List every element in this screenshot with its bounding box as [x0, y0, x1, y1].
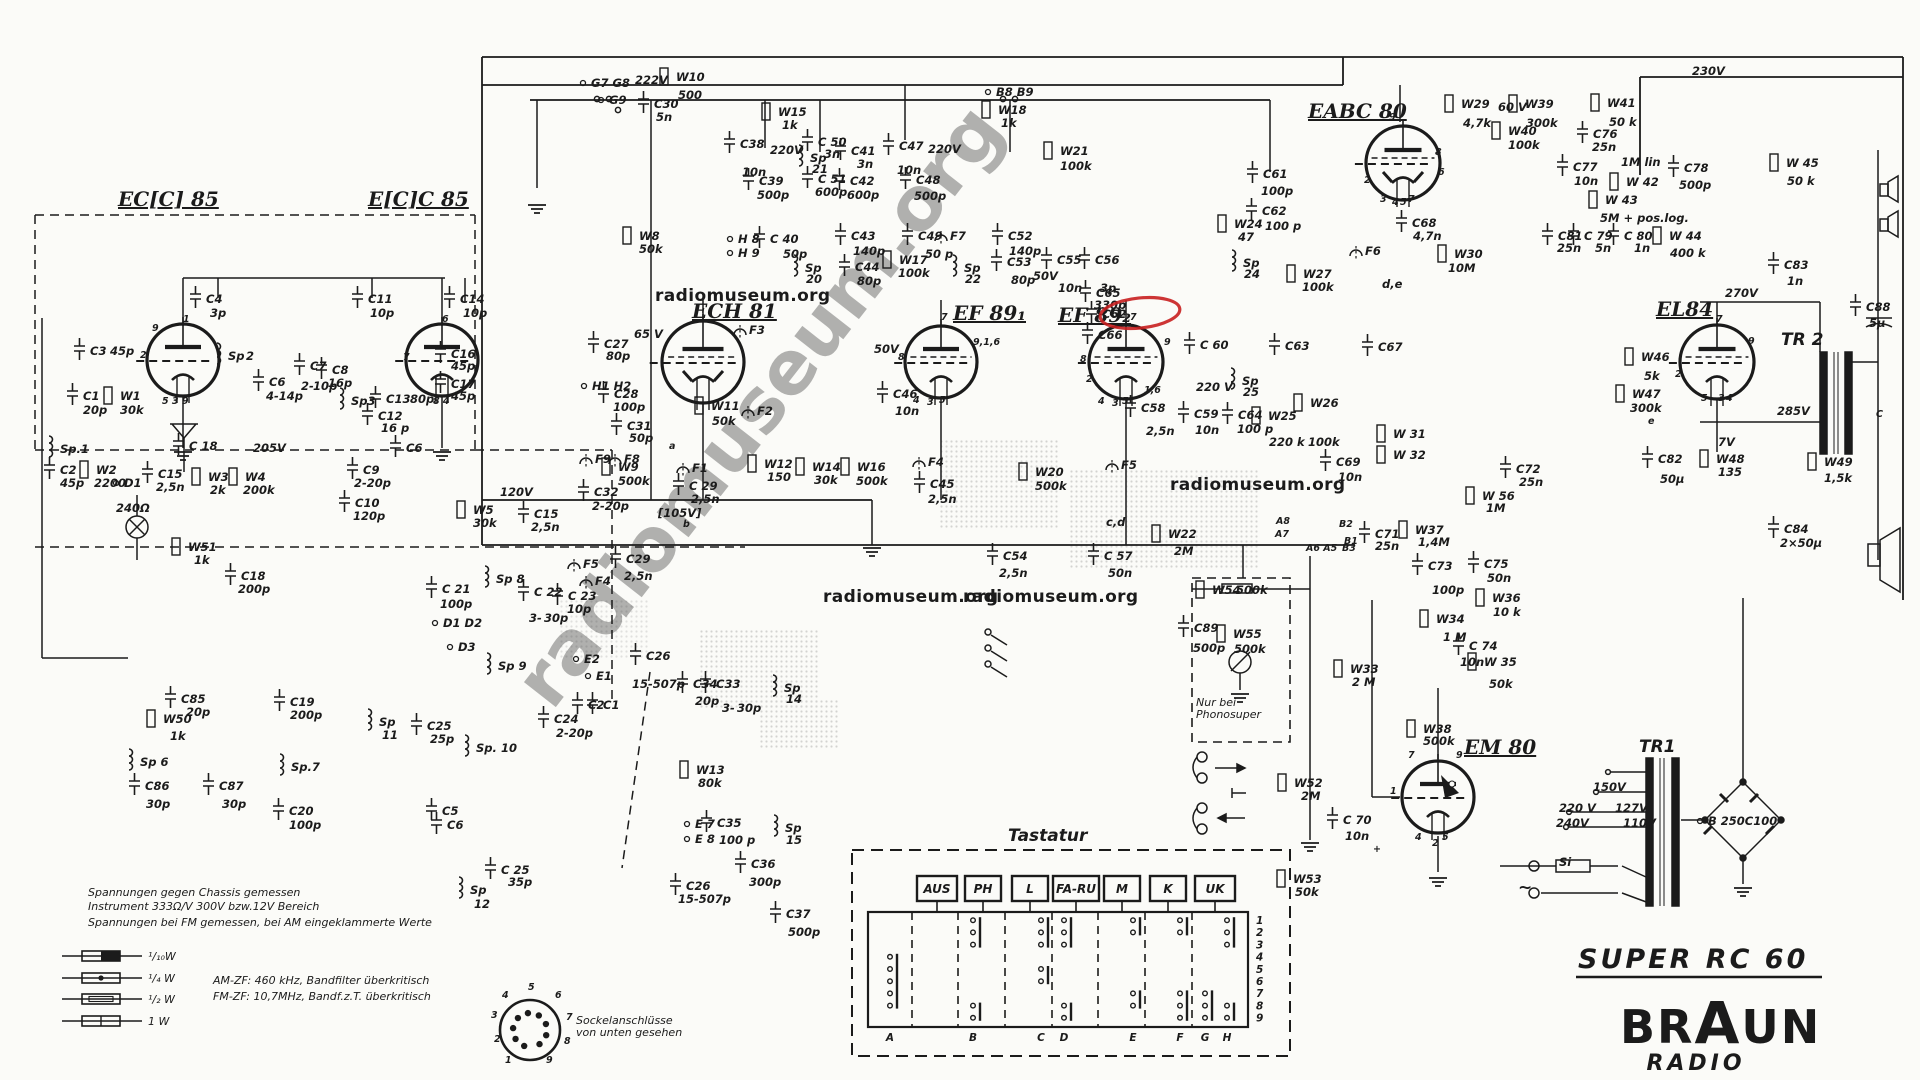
component-label: 500p — [788, 925, 820, 939]
component-label: 10 — [501, 741, 517, 755]
component-label: 240V — [1556, 816, 1590, 830]
component-label: C15 — [158, 467, 182, 481]
watermark-text: radiomuseum.org — [655, 286, 831, 306]
component-label: W52 — [1294, 776, 1323, 790]
tube-label: E[C]C 85 — [367, 187, 469, 211]
component-label: 9 — [546, 1055, 553, 1066]
matrix-column-letter: A — [885, 1032, 894, 1044]
matrix-column-letter: C — [1037, 1032, 1045, 1044]
component-label: C54 — [1003, 549, 1027, 563]
component-label: 500k — [1234, 642, 1267, 656]
component-label: 110V — [1623, 816, 1657, 830]
key-label: M — [1116, 882, 1128, 896]
component-label: e — [1648, 416, 1655, 427]
component-label: 5M + pos.log. — [1600, 211, 1689, 225]
component-label: 4-14p — [265, 389, 303, 403]
component-label: W 45 — [1786, 156, 1819, 170]
component-label: W25 — [1268, 409, 1297, 423]
component-label: W3 — [208, 470, 229, 484]
component-label: c,d — [1106, 515, 1126, 529]
component-label: C59 — [1194, 407, 1218, 421]
component-label: 500 — [678, 88, 702, 102]
component-label: 8 — [564, 1036, 571, 1047]
component-label: 8 — [1080, 354, 1087, 365]
schematic-canvas: radiomuseum.org — [0, 0, 1920, 1080]
component-label: W53 — [1293, 872, 1322, 886]
key-label: PH — [974, 882, 993, 896]
wattage-label: ¹/₁₀W — [148, 950, 177, 963]
component-label: 2 — [140, 350, 147, 361]
component-label: F2 — [757, 404, 773, 418]
component-label: 220 k — [1269, 435, 1306, 449]
component-label: 500p — [1679, 178, 1711, 192]
component-label: 35p — [508, 875, 532, 889]
component-label: 7 — [403, 352, 410, 363]
component-label: 2,5n — [156, 480, 185, 494]
component-label: C47 — [899, 139, 923, 153]
component-label: C1 — [83, 389, 99, 403]
socket-pin-dot — [525, 1010, 531, 1016]
component-label: 500p — [1193, 641, 1225, 655]
component-label: 65 V — [634, 327, 664, 341]
component-label: W 35 — [1484, 655, 1517, 669]
component-label: 5 — [528, 982, 535, 993]
component-label: 2,5n — [624, 569, 653, 583]
component-label: C6 — [269, 375, 285, 389]
component-label: 3 — [1112, 398, 1119, 409]
component-label: E2 — [584, 652, 600, 666]
component-label: C45 — [930, 477, 954, 491]
component-label: ~ — [1518, 878, 1532, 898]
component-label: 45p — [450, 359, 475, 373]
component-label: A8 — [1275, 516, 1290, 527]
component-label: 2 — [494, 1034, 501, 1045]
component-label: b — [683, 519, 690, 530]
component-label: 2,5n — [928, 492, 957, 506]
matrix-row-number: 3 — [1256, 939, 1263, 951]
component-label: 11 — [382, 728, 398, 742]
component-label: C43 — [851, 229, 875, 243]
component-label: H 9 — [738, 246, 760, 260]
model-title: SUPER RC 60 — [1578, 944, 1808, 975]
component-label: 1n — [1634, 241, 1650, 255]
matrix-column-letter: E — [1129, 1032, 1137, 1044]
component-label: 100p — [440, 597, 472, 611]
matrix-column-letter: G — [1201, 1032, 1210, 1044]
component-label: 220V — [928, 142, 962, 156]
key-label: AUS — [922, 882, 950, 896]
component-label: 8 — [1435, 147, 1442, 158]
component-label: a — [669, 441, 675, 452]
component-label: 3- — [529, 611, 542, 625]
key-label: L — [1026, 882, 1034, 896]
component-label: W16 — [857, 460, 886, 474]
component-label: 2,5n — [1146, 424, 1175, 438]
component-label: 25n — [1592, 140, 1616, 154]
component-label: 5n — [656, 110, 672, 124]
component-label: W41 — [1607, 96, 1636, 110]
component-label: 9 — [1389, 112, 1396, 123]
component-label: W9 — [618, 460, 639, 474]
socket-pin-dot — [512, 1036, 518, 1042]
component-label: 4,7k — [1462, 116, 1492, 130]
component-label: 150 — [767, 470, 791, 484]
component-label: W30 — [1454, 247, 1483, 261]
component-label: C 21 — [442, 582, 470, 596]
component-label: Sp 9 — [498, 659, 527, 673]
component-label: C 70 — [1343, 813, 1371, 827]
component-label: 10n — [1574, 174, 1598, 188]
component-label: C62 — [1262, 204, 1286, 218]
wattage-label: ¹/₂ W — [148, 993, 176, 1006]
component-label: C58 — [1141, 401, 1165, 415]
watermark-text: radiomuseum.org — [963, 587, 1139, 607]
component-label: 15-507p — [632, 677, 685, 691]
component-label: 400 k — [1669, 246, 1707, 260]
matrix-column-letter: H — [1223, 1032, 1232, 1044]
component-label: 25 — [1243, 385, 1259, 399]
component-label: W14 — [812, 460, 841, 474]
component-label: C 40 — [770, 232, 798, 246]
component-label: G7 G8 — [591, 76, 630, 90]
component-label: 2M — [1174, 544, 1194, 558]
component-label: 9 — [152, 323, 159, 334]
component-label: C38 — [740, 137, 764, 151]
component-label: C5 — [442, 804, 458, 818]
component-label: W5 — [473, 503, 494, 517]
component-label: C84 — [1784, 522, 1808, 536]
component-label: 500p — [757, 188, 789, 202]
component-label: 300k — [1630, 401, 1663, 415]
tube-label: EC[C] 85 — [117, 187, 219, 211]
component-label: W34 — [1436, 612, 1465, 626]
component-label: 4 — [1725, 393, 1733, 404]
component-label: C52 — [1008, 229, 1032, 243]
component-label: 5 — [1442, 832, 1449, 843]
component-label: 500k — [1035, 479, 1068, 493]
component-label: W50 — [163, 712, 192, 726]
component-label: 7 — [1408, 750, 1415, 761]
component-label: 500p — [914, 189, 946, 203]
component-label: C83 — [1784, 258, 1808, 272]
component-label: 6 — [442, 314, 449, 325]
if-frequency-note: FM-ZF: 10,7MHz, Bandf.z.T. überkritisch — [213, 990, 431, 1003]
component-label: 220 V — [1196, 380, 1234, 394]
component-label: 50n — [1487, 571, 1511, 585]
component-label: 100p — [289, 818, 321, 832]
component-label: + — [1373, 844, 1381, 855]
component-label: E 8 — [695, 832, 715, 846]
component-label: 5 — [1701, 393, 1708, 404]
component-label: 10n — [1460, 655, 1484, 669]
component-label: C11 — [368, 292, 392, 306]
component-label: C24 — [554, 712, 578, 726]
component-label: 30k — [473, 516, 498, 530]
component-label: 100p — [613, 400, 645, 414]
component-label: C9 — [363, 463, 379, 477]
component-label: C42 — [850, 174, 874, 188]
component-label: C48 — [916, 173, 940, 187]
component-label: 4 — [501, 990, 509, 1001]
matrix-row-number: 8 — [1256, 1000, 1263, 1012]
socket-pin-dot — [510, 1025, 516, 1031]
component-label: W40 — [1508, 124, 1537, 138]
matrix-column-letter: B — [969, 1032, 977, 1044]
component-label: C75 — [1484, 557, 1508, 571]
component-label: W 31 — [1393, 427, 1426, 441]
component-label: W22 — [1168, 527, 1197, 541]
component-label: C30 — [654, 97, 678, 111]
component-label: 10 k — [1493, 605, 1522, 619]
component-label: 20p — [695, 694, 719, 708]
component-label: 20p — [83, 403, 107, 417]
component-label: 15 — [786, 833, 802, 847]
component-label: C26 — [686, 879, 710, 893]
component-label: 3 — [927, 397, 934, 408]
component-label: F3 — [749, 323, 765, 337]
component-label: W46 — [1641, 350, 1670, 364]
component-label: C64 — [1238, 408, 1262, 422]
component-label: 4 — [1391, 197, 1399, 208]
component-label: 7 — [566, 1012, 573, 1023]
component-label: C53 — [1007, 255, 1031, 269]
component-label: 600p — [847, 188, 879, 202]
socket-pin-dot — [536, 1012, 542, 1018]
if-frequency-note: AM-ZF: 460 kHz, Bandfilter überkritisch — [212, 974, 429, 987]
component-label: 7V — [1718, 435, 1736, 449]
component-label: F5 — [1121, 458, 1137, 472]
component-label: D1 — [124, 476, 142, 490]
component-label: C14 — [460, 292, 484, 306]
socket-note: von unten gesehen — [576, 1026, 682, 1039]
component-label: 2-20p — [592, 499, 629, 513]
component-label: 50k — [1489, 677, 1514, 691]
matrix-row-number: 4 — [1255, 952, 1263, 964]
component-label: W39 — [1525, 97, 1554, 111]
component-label: C 51 — [818, 172, 846, 186]
component-label: 7 — [941, 312, 948, 323]
legend-dot — [98, 975, 103, 980]
component-label: 1 — [505, 1055, 512, 1066]
radio-subtitle: RADIO — [1646, 1051, 1745, 1076]
component-label: W20 — [1035, 465, 1064, 479]
component-label: C44 — [855, 260, 879, 274]
component-label: 6 — [1438, 167, 1445, 178]
component-label: 50k — [712, 414, 737, 428]
component-label: C20 — [289, 804, 313, 818]
component-label: 3n — [824, 147, 840, 161]
component-label: TR1 — [1639, 737, 1676, 757]
component-label: 50k — [639, 242, 664, 256]
component-label: C66 — [1098, 328, 1122, 342]
component-label: TR 2 — [1781, 330, 1823, 350]
component-label: 2,5n — [999, 566, 1028, 580]
component-label: 10p — [463, 306, 487, 320]
key-label: FA-RU — [1056, 882, 1096, 896]
component-label: 7 — [1716, 314, 1723, 325]
component-label: 285V — [1777, 404, 1811, 418]
component-label: 8 — [898, 352, 905, 363]
component-label: 500k — [856, 474, 889, 488]
component-label: 47 — [1237, 230, 1254, 244]
component-label: 1k — [194, 553, 211, 567]
matrix-row-number: 6 — [1256, 976, 1263, 988]
component-label: 50p — [629, 431, 653, 445]
component-label: W4 — [245, 470, 266, 484]
component-label: 500k — [1423, 734, 1456, 748]
component-label: 50k — [1295, 885, 1320, 899]
component-label: C87 — [219, 779, 243, 793]
component-label: 2 — [1086, 374, 1093, 385]
component-label: 135 — [1718, 465, 1742, 479]
component-label: 3 — [1718, 393, 1725, 404]
component-label: 230V — [1692, 64, 1726, 78]
component-label: W29 — [1461, 97, 1490, 111]
component-label: C56 — [1095, 253, 1119, 267]
component-label: 15-507p — [678, 892, 731, 906]
component-label: Si — [1559, 855, 1572, 869]
matrix-column-letter: D — [1060, 1032, 1069, 1044]
component-label: 30k — [120, 403, 145, 417]
component-label: 1n — [1787, 274, 1803, 288]
component-label: 10p — [567, 602, 591, 616]
component-label: 240Ω — [116, 501, 150, 515]
schematic-page: BRAUN Radio SUPER RC 60 — Schaltbild (ra… — [0, 0, 1920, 1080]
component-label: W49 — [1824, 455, 1853, 469]
component-label: F7 — [950, 229, 966, 243]
component-label: C13 — [386, 392, 410, 406]
component-label: 2,5n — [531, 520, 560, 534]
matrix-column-letter: F — [1176, 1032, 1184, 1044]
component-label: W15 — [778, 105, 807, 119]
component-label: C6 — [447, 818, 463, 832]
component-label: C32 — [594, 485, 618, 499]
component-label: 20 — [806, 272, 822, 286]
component-label: 1,4M — [1418, 535, 1450, 549]
component-label: W21 — [1060, 144, 1089, 158]
component-label: C86 — [145, 779, 169, 793]
tube-label: EL84 — [1655, 297, 1713, 321]
component-label: E 7 — [695, 817, 715, 831]
component-label: 1 M — [1443, 630, 1467, 644]
component-label: 30p — [222, 797, 246, 811]
component-label: 2-20p — [354, 476, 391, 490]
component-label: W24 — [1234, 217, 1263, 231]
component-label: 80p — [606, 349, 630, 363]
component-label: 100k — [1508, 138, 1541, 152]
component-label: C 18 — [189, 439, 217, 453]
component-label: C72 — [1516, 462, 1540, 476]
component-label: 5 — [939, 395, 946, 406]
component-label: W55 — [1233, 627, 1262, 641]
component-label: C41 — [851, 144, 875, 158]
component-label: 25p — [430, 732, 454, 746]
component-label: Sp — [470, 883, 487, 897]
component-label: 3 — [491, 1010, 498, 1021]
component-label: 127V — [1615, 801, 1649, 815]
component-label: 300p — [749, 875, 781, 889]
component-label: 10p — [370, 306, 394, 320]
component-label: 5n — [1595, 241, 1611, 255]
component-label: 80p — [1011, 273, 1035, 287]
component-label: 5 — [1122, 396, 1129, 407]
component-label: W18 — [998, 103, 1027, 117]
component-label: C7 — [310, 359, 326, 373]
component-label: W 43 — [1605, 193, 1638, 207]
note-line: Spannungen gegen Chassis gemessen — [88, 886, 300, 899]
component-label: Sp.7 — [291, 760, 320, 774]
component-label: W1 — [120, 389, 141, 403]
component-label: 200k — [243, 483, 276, 497]
component-label: W27 — [1303, 267, 1332, 281]
component-label: 25n — [1375, 539, 1399, 553]
watermark-text: radiomuseum.org — [1170, 475, 1346, 495]
component-label: A6 A5 — [1305, 543, 1338, 554]
component-label: 50 p — [925, 247, 953, 261]
component-label: 80p — [410, 392, 434, 406]
component-label: 9 — [1748, 336, 1755, 347]
component-label: 220V — [770, 143, 804, 157]
component-label: 3 — [1380, 194, 1387, 205]
matrix-row-number: 5 — [1256, 964, 1263, 976]
component-label: 6 — [555, 990, 562, 1001]
component-label: 2M — [1301, 789, 1321, 803]
component-label: C35 — [717, 816, 741, 830]
matrix-row-number: 9 — [1256, 1013, 1263, 1025]
note-line: Spannungen bei FM gemessen, bei AM einge… — [88, 916, 432, 929]
tube-label: EF 89₁ — [952, 301, 1026, 325]
component-label: 5μ — [1869, 316, 1885, 330]
component-label: C 23 — [568, 589, 596, 603]
component-label: 5 — [1400, 197, 1407, 208]
component-label: 30p — [544, 611, 568, 625]
socket-pin-dot — [515, 1015, 521, 1021]
component-label: 12 — [474, 897, 490, 911]
component-label: 2 — [246, 349, 254, 363]
component-label: W10 — [676, 70, 705, 84]
component-label: 2k — [210, 483, 227, 497]
tube-label: EM 80 — [1463, 735, 1536, 759]
component-label: 1,5k — [1824, 471, 1853, 485]
component-label: C85 — [181, 692, 205, 706]
component-label: 1M lin — [1621, 155, 1661, 169]
component-label: 100 p — [719, 833, 755, 847]
component-label: 9 — [1164, 337, 1171, 348]
component-label: C33 — [716, 677, 740, 691]
component-label: 10n — [1058, 281, 1082, 295]
component-label: 1,6 — [1144, 385, 1161, 396]
component-label: C82 — [1658, 452, 1682, 466]
wattage-label: 1 W — [148, 1015, 170, 1028]
component-label: 50 k — [1787, 174, 1816, 188]
component-label: F4 — [928, 455, 944, 469]
component-label: 10n — [895, 404, 919, 418]
component-label: C 74 — [1469, 639, 1497, 653]
component-label: 2 — [1675, 369, 1682, 380]
component-label: 45p — [450, 389, 475, 403]
component-label: A7 — [1274, 529, 1289, 540]
component-label: [105V] — [657, 506, 702, 520]
component-label: 30k — [814, 473, 839, 487]
component-label: F5 — [583, 557, 599, 571]
component-label: 2 — [1364, 175, 1371, 186]
socket-pin-dot — [543, 1021, 549, 1027]
component-label: C61 — [1263, 167, 1287, 181]
component-label: W13 — [696, 763, 725, 777]
socket-pin-dot — [536, 1041, 542, 1047]
component-label: W47 — [1632, 387, 1661, 401]
component-label: C25 — [427, 719, 451, 733]
